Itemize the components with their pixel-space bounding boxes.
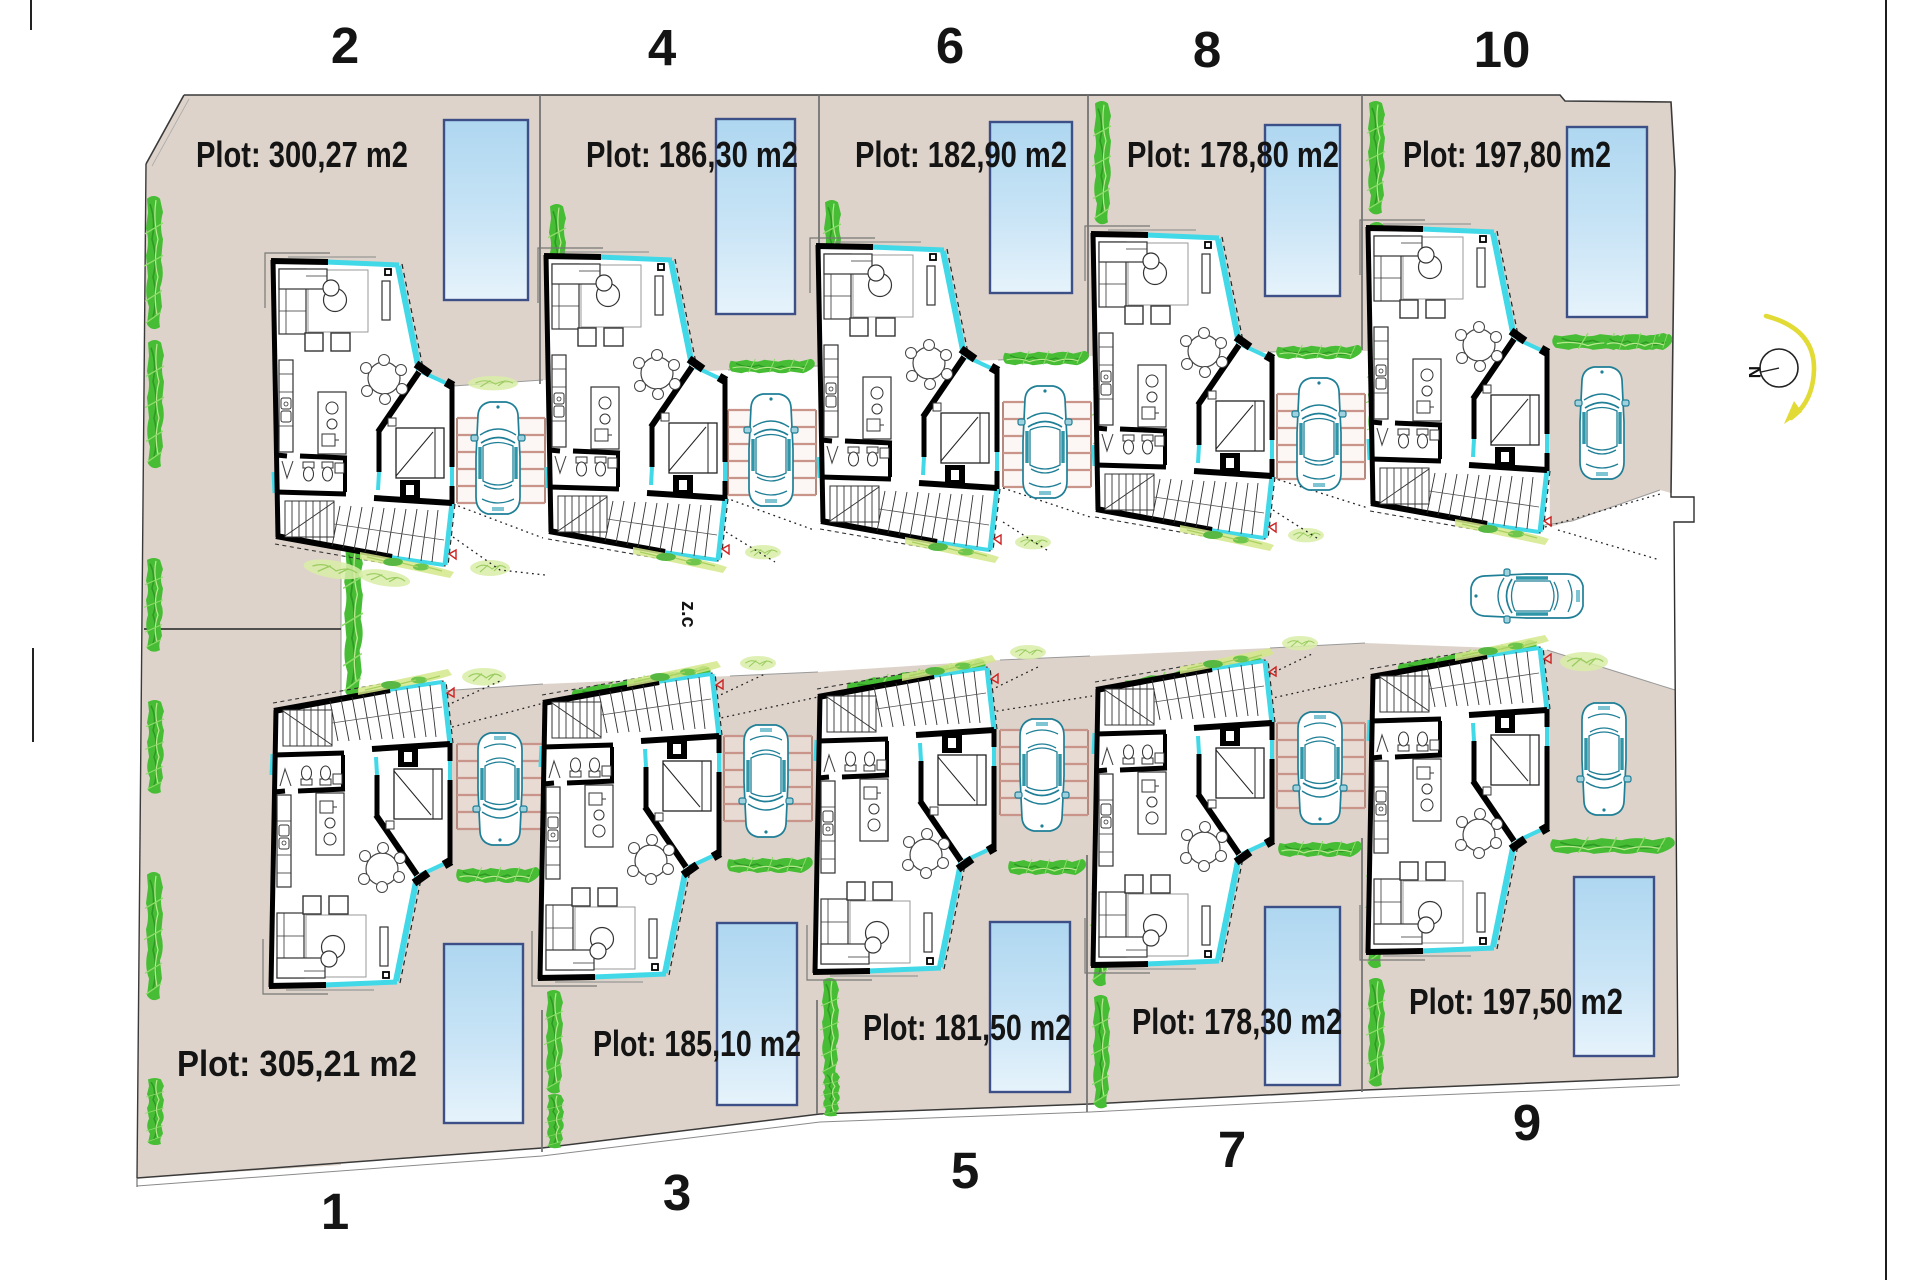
- svg-text:Plot: 197,50 m2: Plot: 197,50 m2: [1409, 981, 1623, 1022]
- svg-text:Plot: 305,21 m2: Plot: 305,21 m2: [177, 1043, 417, 1084]
- svg-text:10: 10: [1474, 21, 1531, 78]
- svg-text:Plot: 178,80 m2: Plot: 178,80 m2: [1127, 134, 1339, 175]
- svg-text:8: 8: [1193, 21, 1221, 78]
- svg-text:7: 7: [1218, 1121, 1246, 1178]
- svg-text:Plot: 300,27 m2: Plot: 300,27 m2: [196, 134, 408, 175]
- svg-text:Plot: 197,80 m2: Plot: 197,80 m2: [1403, 134, 1611, 175]
- svg-text:Plot: 186,30 m2: Plot: 186,30 m2: [586, 134, 798, 175]
- svg-text:z.c: z.c: [677, 601, 699, 628]
- svg-text:Plot: 181,50 m2: Plot: 181,50 m2: [863, 1007, 1071, 1048]
- svg-text:Plot: 185,10 m2: Plot: 185,10 m2: [593, 1023, 801, 1064]
- svg-text:5: 5: [951, 1142, 979, 1199]
- svg-text:3: 3: [663, 1164, 691, 1221]
- svg-text:6: 6: [936, 17, 964, 74]
- svg-text:9: 9: [1513, 1094, 1541, 1151]
- svg-text:Plot: 178,30 m2: Plot: 178,30 m2: [1132, 1001, 1342, 1042]
- svg-text:1: 1: [321, 1183, 349, 1240]
- svg-text:Plot: 182,90 m2: Plot: 182,90 m2: [855, 134, 1067, 175]
- svg-text:2: 2: [331, 17, 359, 74]
- svg-text:4: 4: [648, 19, 677, 76]
- svg-text:N: N: [1745, 366, 1764, 378]
